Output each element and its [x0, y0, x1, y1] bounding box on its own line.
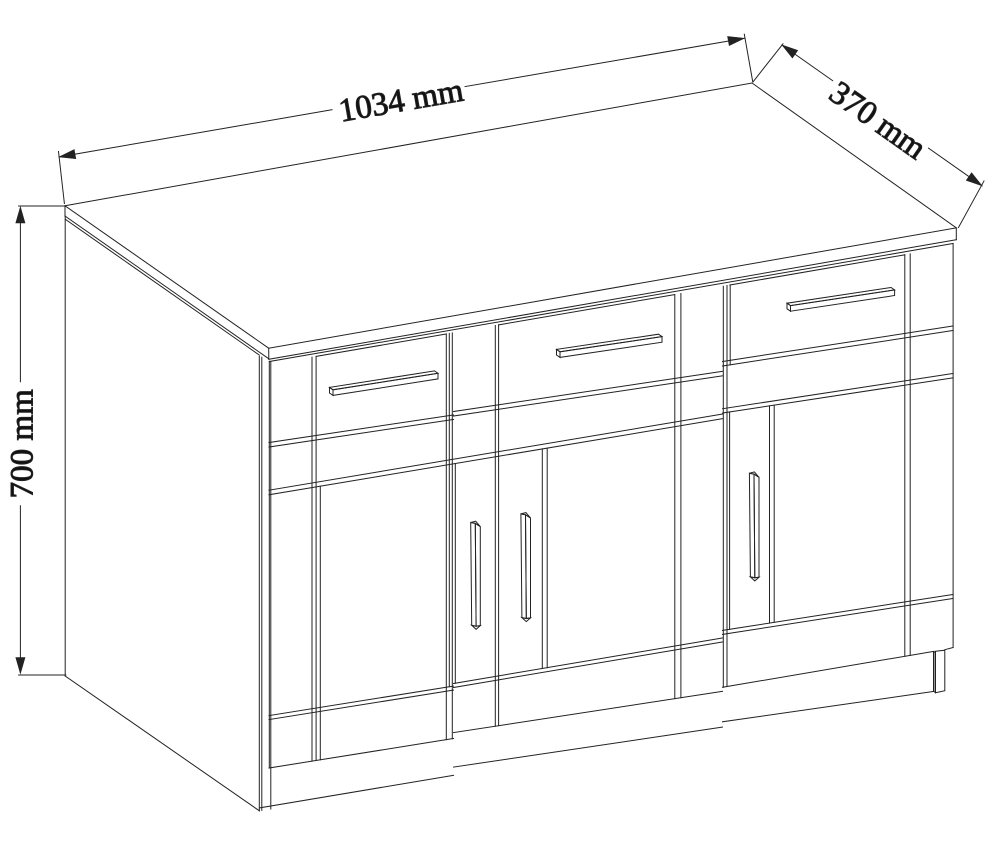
svg-text:1034 mm: 1034 mm	[336, 73, 466, 130]
svg-text:700 mm: 700 mm	[5, 389, 41, 498]
